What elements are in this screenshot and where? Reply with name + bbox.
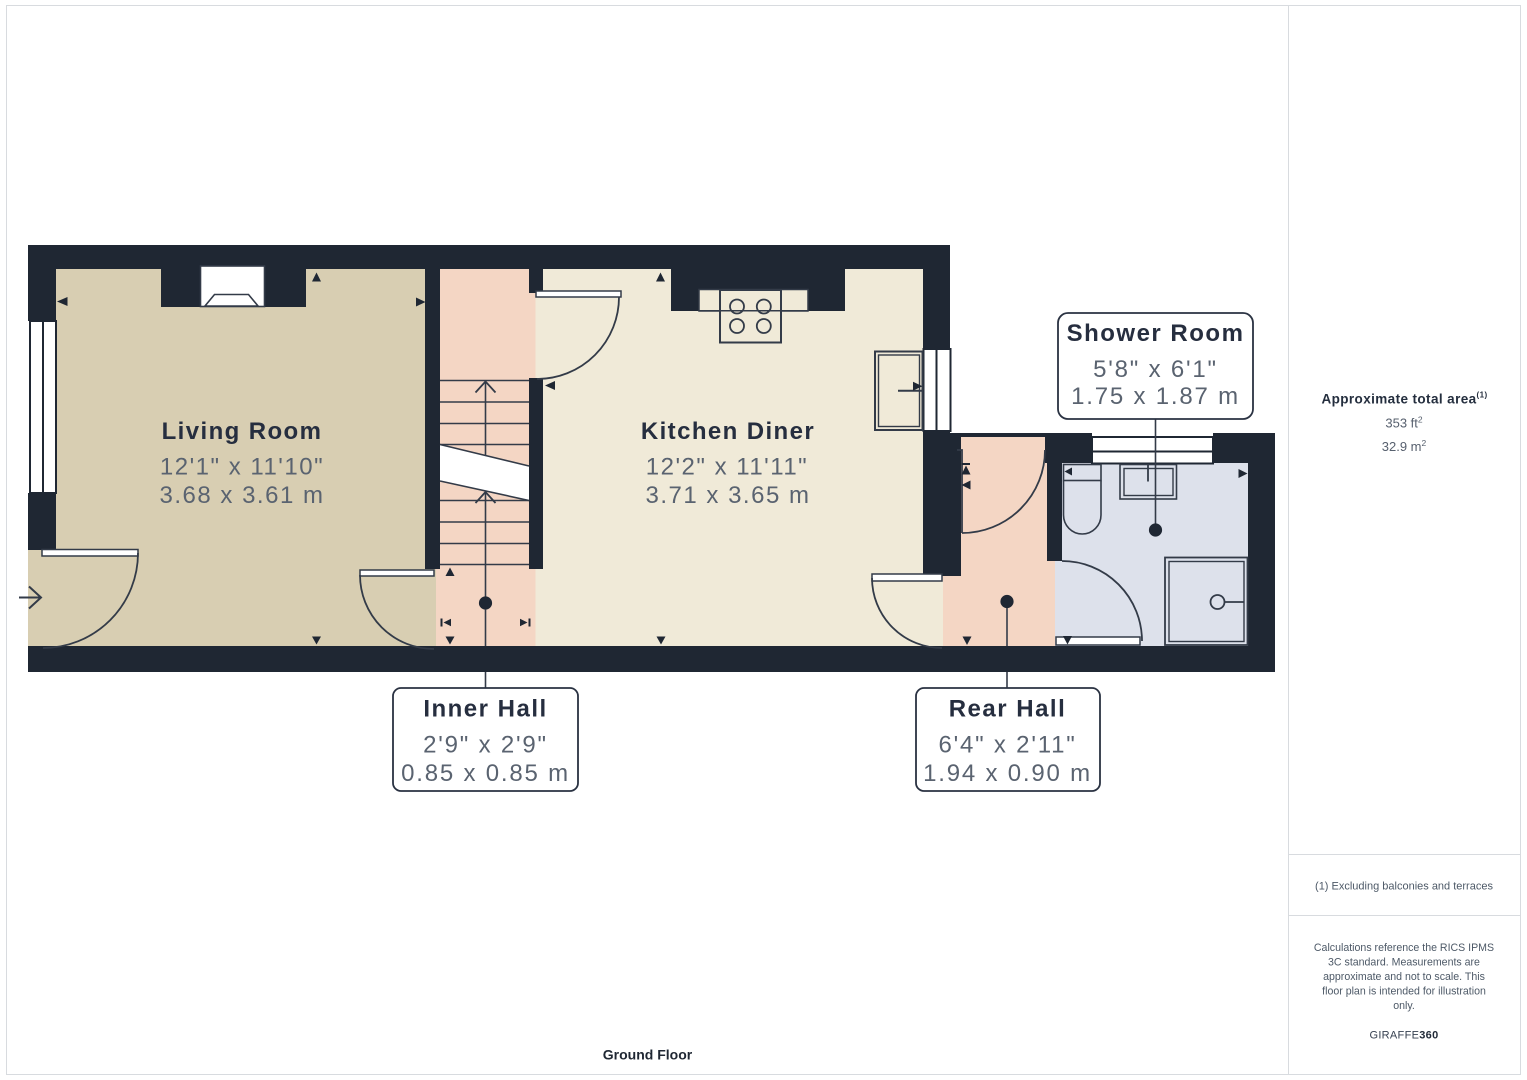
svg-text:Calculations reference the RIC: Calculations reference the RICS IPMS [1314, 942, 1494, 954]
svg-text:Shower Room: Shower Room [1067, 320, 1245, 347]
svg-text:2'9" x 2'9": 2'9" x 2'9" [423, 732, 548, 759]
svg-text:32.9 m2: 32.9 m2 [1382, 438, 1427, 454]
svg-text:approximate and not to scale.: approximate and not to scale. This [1323, 971, 1485, 983]
svg-text:Rear Hall: Rear Hall [949, 696, 1067, 723]
svg-text:0.85 x 0.85 m: 0.85 x 0.85 m [401, 760, 570, 787]
svg-text:(1) Excluding balconies and te: (1) Excluding balconies and terraces [1315, 881, 1493, 893]
svg-text:12'1" x 11'10": 12'1" x 11'10" [160, 454, 324, 481]
svg-text:Approximate total area(1): Approximate total area(1) [1321, 391, 1487, 407]
svg-text:Living Room: Living Room [162, 418, 323, 445]
svg-text:3.71 x 3.65 m: 3.71 x 3.65 m [646, 482, 811, 509]
svg-text:3.68 x 3.61 m: 3.68 x 3.61 m [160, 482, 325, 509]
svg-text:floor plan is intended for ill: floor plan is intended for illustration [1322, 986, 1486, 998]
svg-text:GIRAFFE360: GIRAFFE360 [1369, 1030, 1438, 1042]
svg-text:1.75 x 1.87 m: 1.75 x 1.87 m [1071, 383, 1240, 410]
svg-text:3C standard. Measurements are: 3C standard. Measurements are [1328, 957, 1480, 969]
svg-text:only.: only. [1393, 1000, 1415, 1012]
svg-text:Kitchen Diner: Kitchen Diner [641, 418, 815, 445]
svg-text:Inner Hall: Inner Hall [423, 696, 547, 723]
svg-text:353 ft2: 353 ft2 [1385, 415, 1423, 431]
svg-text:Ground Floor: Ground Floor [603, 1047, 693, 1063]
svg-text:1.94 x 0.90 m: 1.94 x 0.90 m [923, 760, 1092, 787]
svg-text:5'8" x 6'1": 5'8" x 6'1" [1093, 356, 1218, 383]
svg-text:6'4" x 2'11": 6'4" x 2'11" [938, 732, 1076, 759]
svg-text:12'2" x 11'11": 12'2" x 11'11" [646, 454, 808, 481]
